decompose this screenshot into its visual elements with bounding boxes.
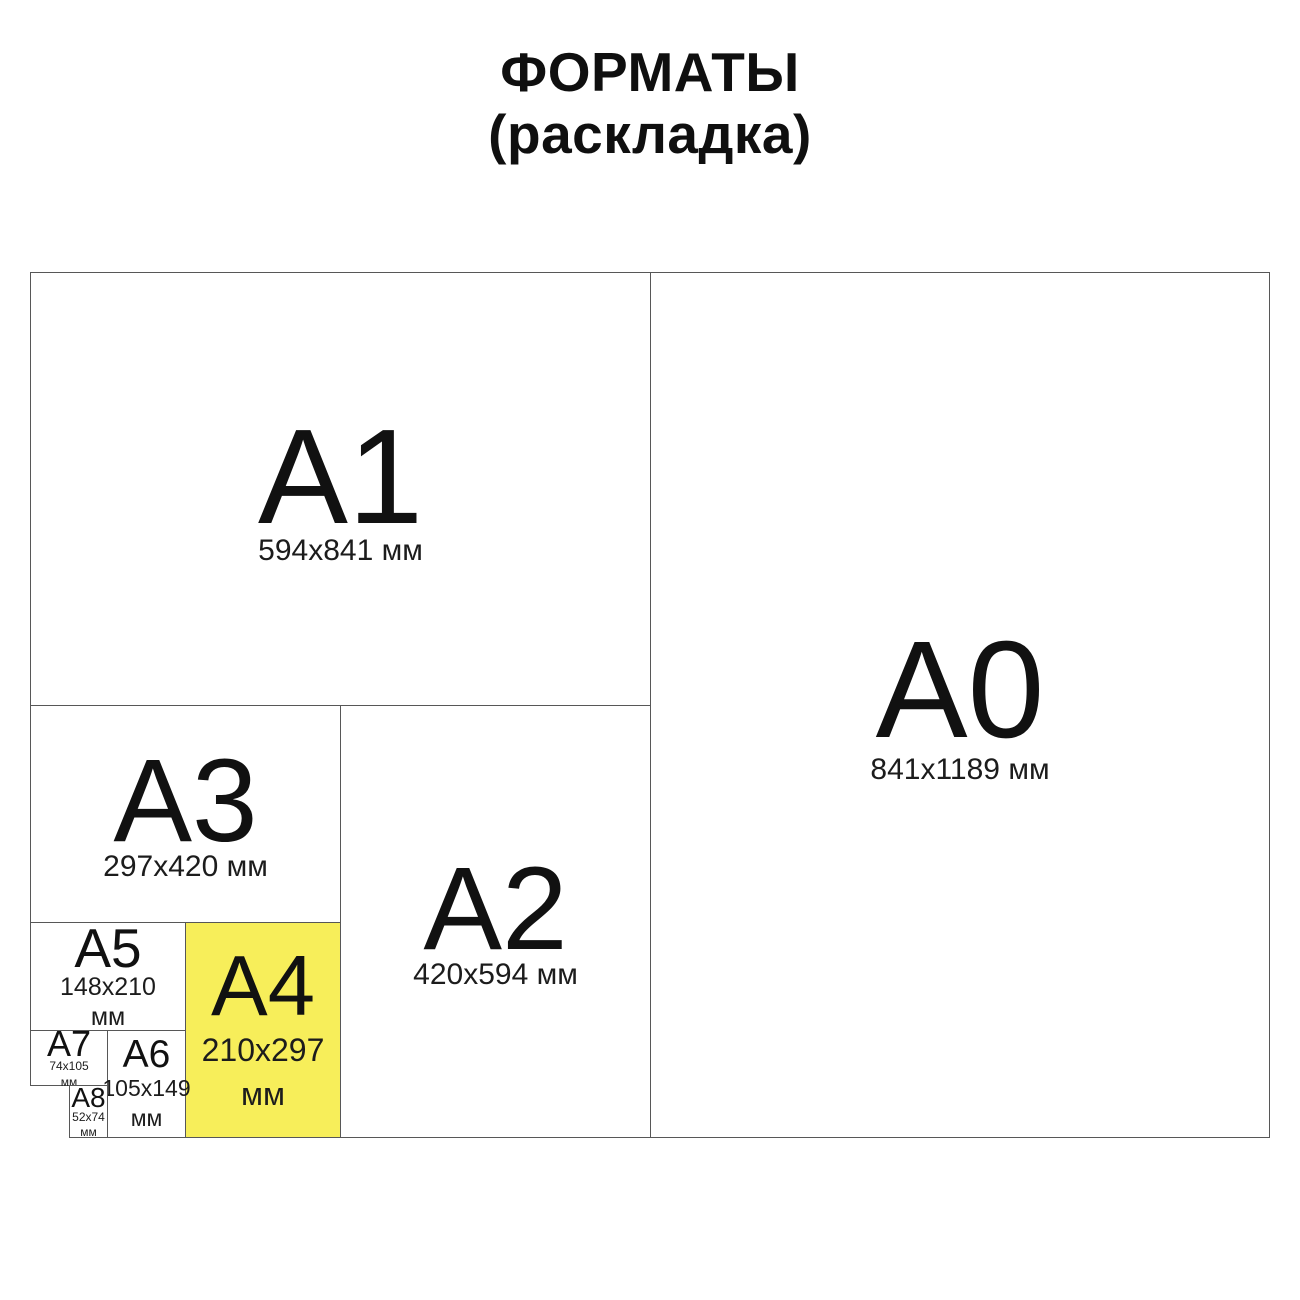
format-label-a6: A6 <box>123 1035 171 1074</box>
format-box-a2: A2 420x594 мм <box>340 705 651 1138</box>
format-box-a4-highlighted: A4 210x297 мм <box>185 922 341 1138</box>
format-label-a3: A3 <box>113 742 257 860</box>
format-label-a7: A7 <box>47 1026 91 1062</box>
format-box-a5: A5 148x210 мм <box>30 922 186 1031</box>
format-dimensions-a8: 52x74 мм <box>72 1110 105 1140</box>
dimension-unit: мм <box>202 1073 325 1116</box>
format-label-a0: A0 <box>876 621 1045 759</box>
format-label-a2: A2 <box>423 850 567 968</box>
format-box-a0: A0 841x1189 мм <box>650 272 1270 1138</box>
dimension-text: 74x105 <box>49 1059 88 1075</box>
format-box-a1: A1 594x841 мм <box>30 272 651 706</box>
page-title-line1: ФОРМАТЫ <box>0 42 1300 104</box>
format-label-a1: A1 <box>258 409 423 544</box>
format-dimensions-a4: 210x297 мм <box>202 1029 325 1115</box>
format-dimensions-a0: 841x1189 мм <box>870 751 1049 789</box>
format-label-a8: A8 <box>71 1084 105 1112</box>
format-label-a5: A5 <box>74 921 141 976</box>
format-dimensions-a3: 297x420 мм <box>103 848 268 886</box>
dimension-text: 297x420 мм <box>103 848 268 886</box>
page-title: ФОРМАТЫ (раскладка) <box>0 42 1300 165</box>
dimension-text: 210x297 <box>202 1029 325 1072</box>
dimension-text: 841x1189 мм <box>870 751 1049 789</box>
format-box-a6: A6 105x149 мм <box>107 1030 186 1138</box>
page-title-line2: (раскладка) <box>0 104 1300 166</box>
format-dimensions-a2: 420x594 мм <box>413 956 578 994</box>
dimension-unit: мм <box>72 1125 105 1140</box>
dimension-text: 420x594 мм <box>413 956 578 994</box>
dimension-text: 594x841 мм <box>258 532 423 570</box>
format-box-a3: A3 297x420 мм <box>30 705 341 923</box>
dimension-text: 52x74 <box>72 1110 105 1125</box>
dimension-text: 148x210 <box>60 973 156 1003</box>
dimension-unit: мм <box>102 1104 190 1134</box>
format-dimensions-a1: 594x841 мм <box>258 532 423 570</box>
format-dimensions-a6: 105x149 мм <box>102 1074 190 1134</box>
dimension-text: 105x149 <box>102 1074 190 1104</box>
format-label-a4: A4 <box>211 944 315 1029</box>
format-box-a7: A7 74x105 мм <box>30 1030 108 1086</box>
format-box-a8: A8 52x74 мм <box>69 1085 108 1138</box>
paper-formats-diagram: ФОРМАТЫ (раскладка) A1 594x841 мм A0 841… <box>0 0 1300 1300</box>
